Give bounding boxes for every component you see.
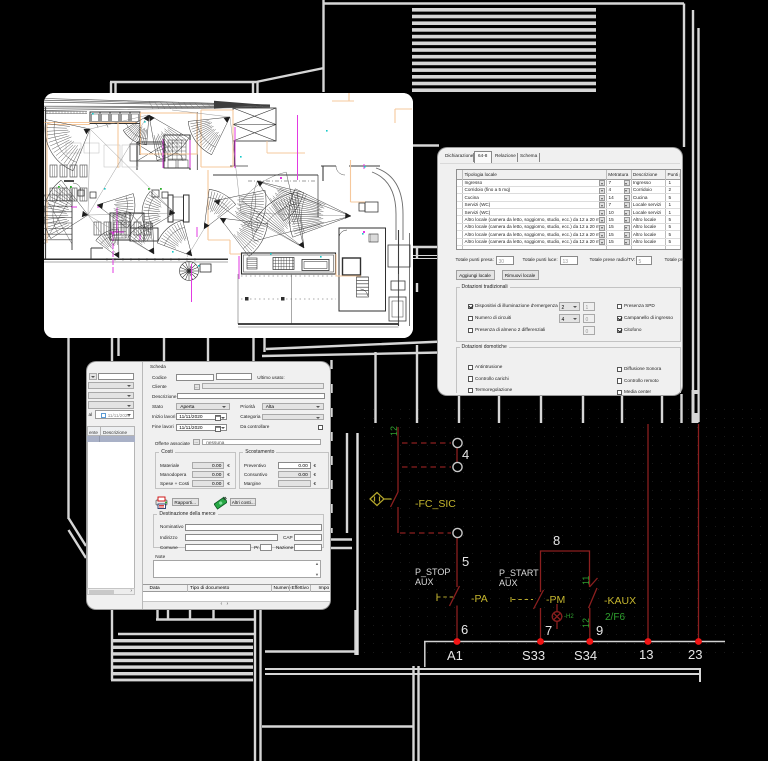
svg-text:13: 13 bbox=[639, 647, 653, 662]
svg-text:8: 8 bbox=[553, 533, 560, 548]
svg-text:11: 11 bbox=[581, 576, 591, 585]
svg-text:S33: S33 bbox=[522, 648, 545, 663]
svg-text:12: 12 bbox=[581, 618, 591, 628]
svg-text:P_START: P_START bbox=[499, 568, 539, 578]
svg-text:P_STOP: P_STOP bbox=[415, 567, 450, 577]
svg-text:S34: S34 bbox=[574, 648, 597, 663]
svg-text:12: 12 bbox=[389, 426, 399, 436]
svg-text:4: 4 bbox=[462, 447, 469, 462]
svg-text:-PA: -PA bbox=[471, 593, 488, 605]
svg-text:-FC_SIC: -FC_SIC bbox=[415, 498, 456, 510]
svg-text:5: 5 bbox=[462, 554, 469, 569]
svg-text:23: 23 bbox=[688, 647, 702, 662]
svg-text:-PM: -PM bbox=[546, 594, 565, 606]
svg-text:A1: A1 bbox=[447, 648, 463, 663]
svg-text:AUX: AUX bbox=[415, 577, 434, 587]
svg-text:AUX: AUX bbox=[499, 578, 518, 588]
svg-text:9: 9 bbox=[596, 623, 603, 638]
svg-text:7: 7 bbox=[545, 623, 552, 638]
svg-text:2/F6: 2/F6 bbox=[605, 612, 625, 623]
svg-text:6: 6 bbox=[461, 622, 468, 637]
svg-text:-KAUX: -KAUX bbox=[604, 595, 636, 607]
svg-text:-H2: -H2 bbox=[564, 614, 574, 620]
